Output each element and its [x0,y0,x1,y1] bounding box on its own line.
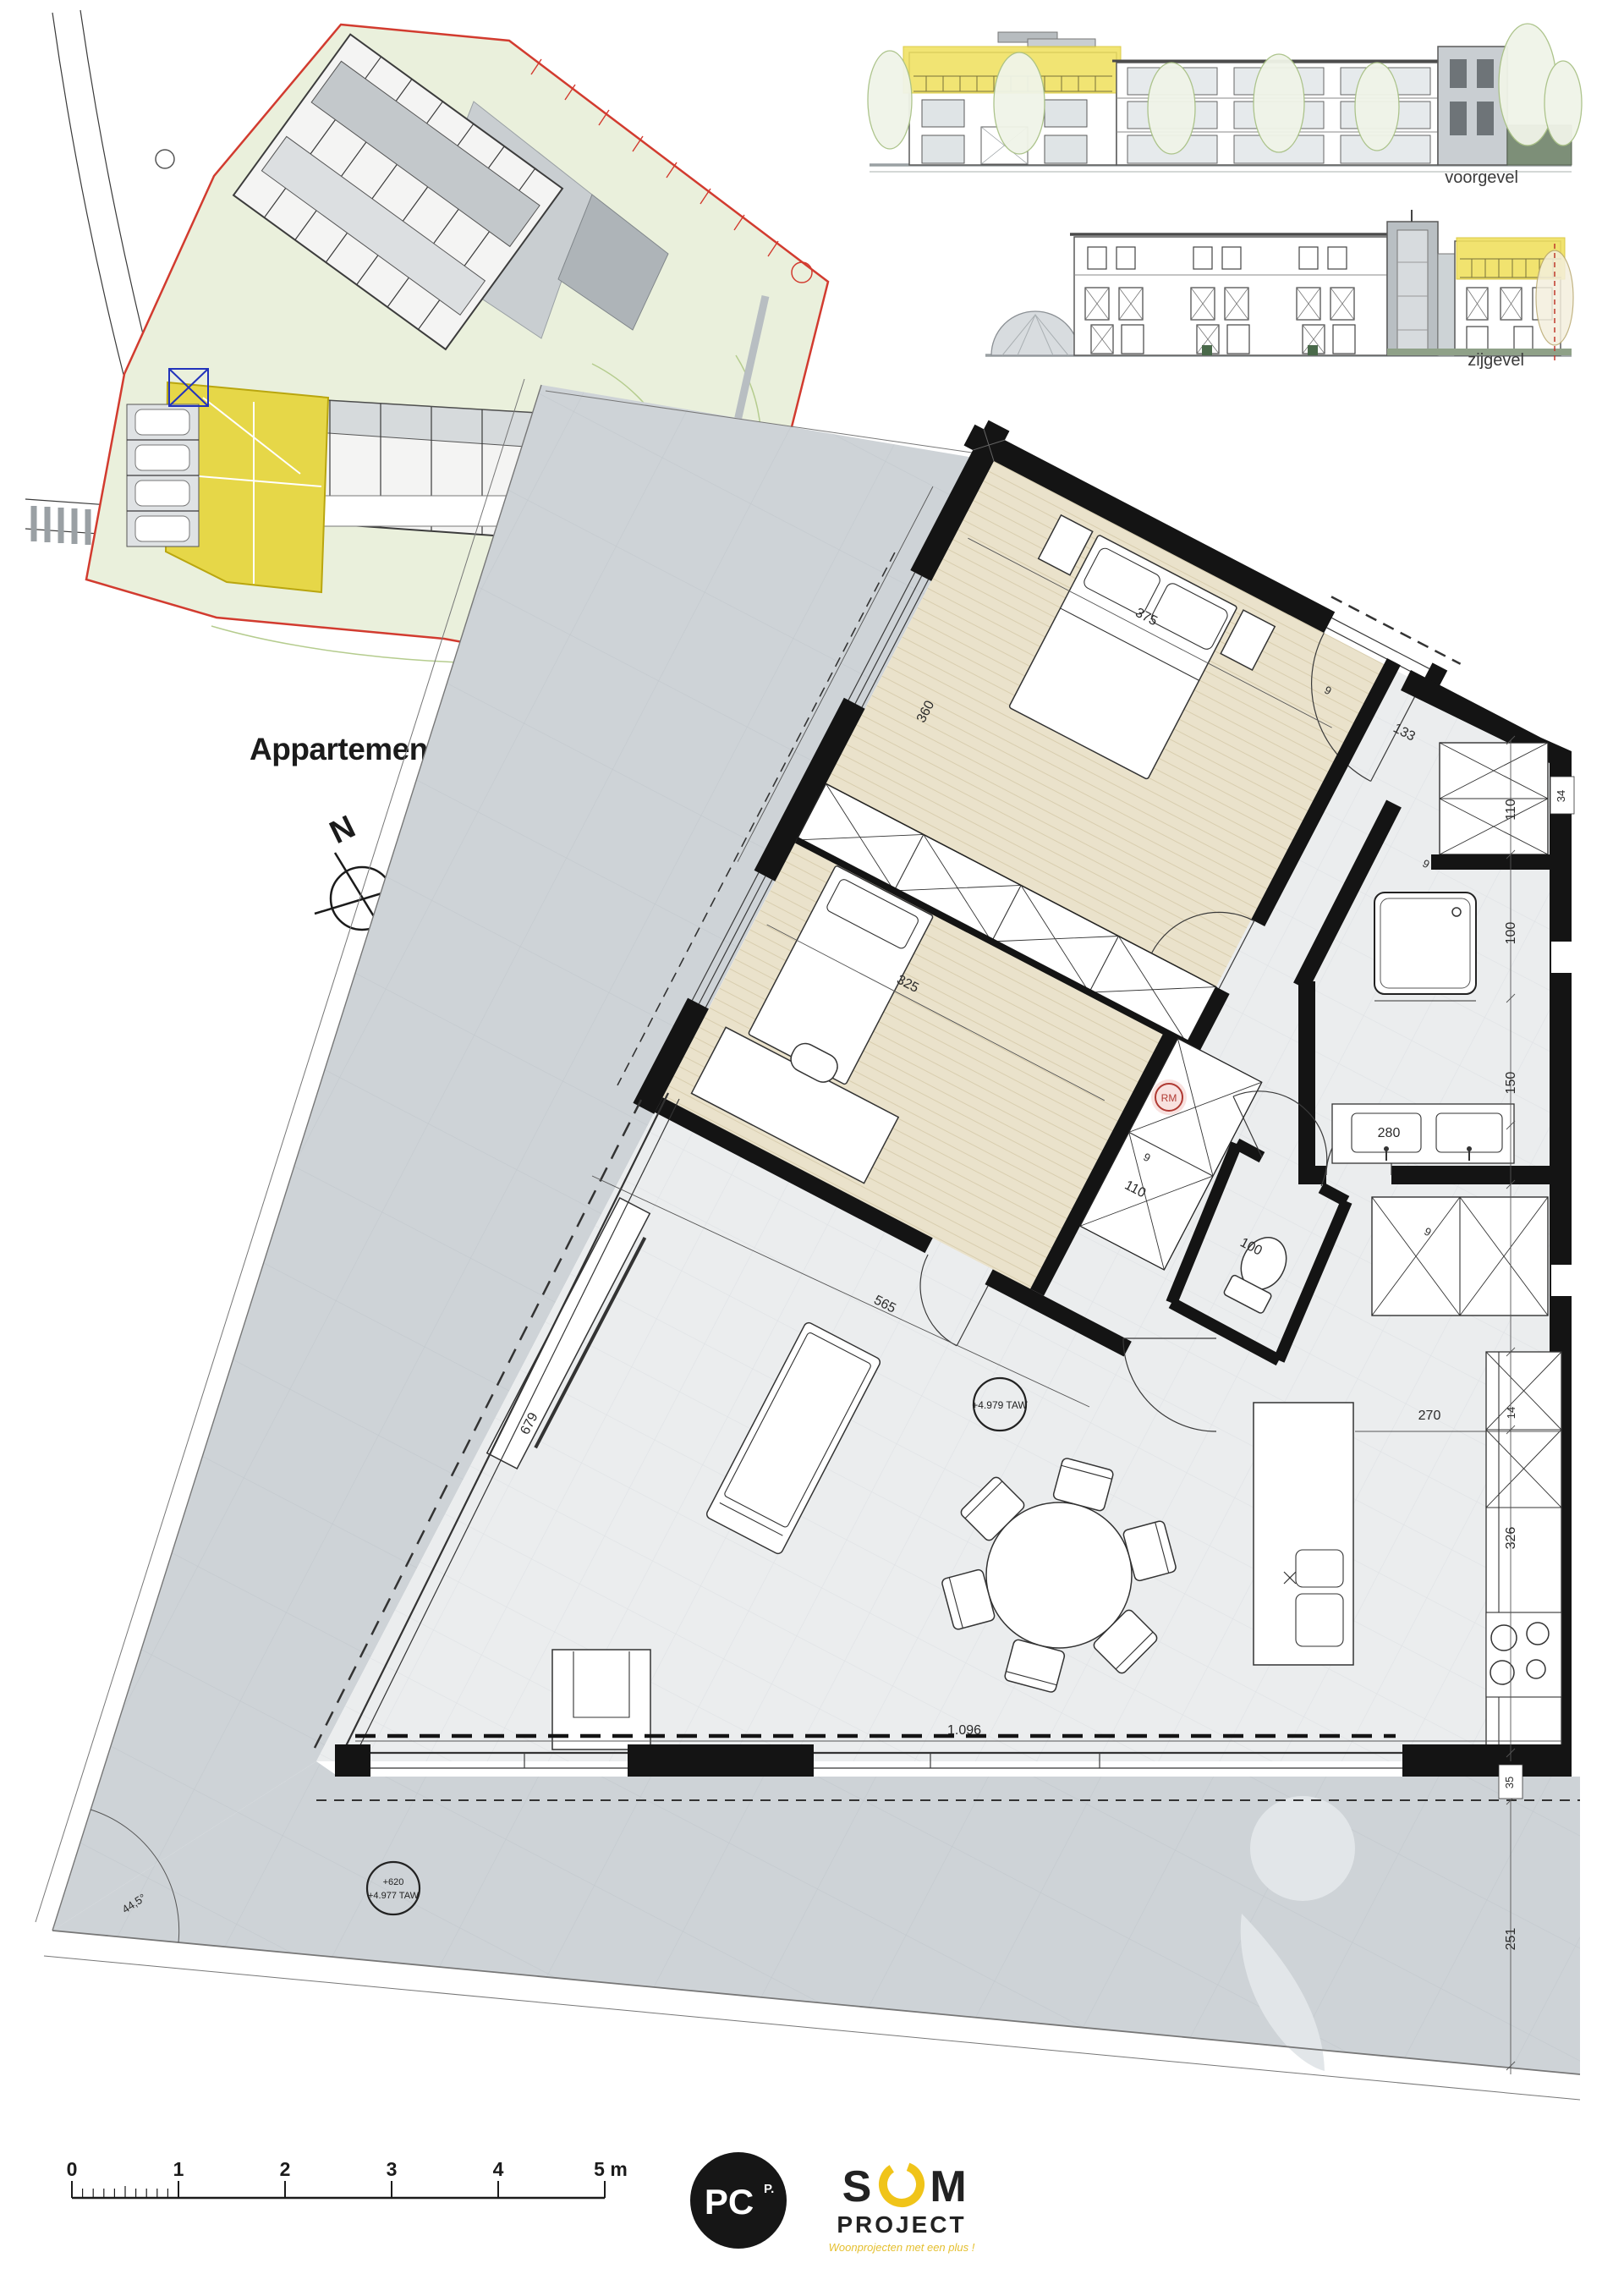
smoke-detector: RM [1151,1079,1187,1115]
drawing-canvas: voorgevel [0,0,1624,2296]
svg-text:RM: RM [1161,1092,1177,1104]
scale-1: 1 [173,2158,184,2180]
som-project: PROJECT [837,2211,966,2238]
dim-14: 14 [1505,1407,1517,1419]
plan-sheet: voorgevel [0,0,1624,2296]
som-project-logo: S M PROJECT Woonprojecten met een plus ! [829,2161,975,2254]
elev-zijgevel: zijgevel [985,210,1573,370]
crosswalk [34,506,101,546]
som-m: M [930,2162,966,2211]
north-label: N [325,809,361,851]
pc-logo-text: PC [705,2182,754,2222]
som-o-icon [878,2161,925,2208]
kitchen-counter [1486,1352,1561,1761]
pc-logo-sup: P. [764,2182,774,2196]
dim-270: 270 [1418,1409,1441,1423]
scale-5: 5 m [594,2158,628,2180]
pc-logo: PC P. [690,2152,787,2249]
storage-closet-top [1431,743,1556,870]
shower [1374,893,1476,1001]
floor-plan: 44,5° [36,379,1580,2100]
cooktop [1486,1612,1561,1697]
scale-4: 4 [493,2158,504,2180]
som-tagline: Woonprojecten met een plus ! [829,2241,975,2254]
vanity [1332,1104,1514,1163]
som-s: S [842,2162,872,2211]
laundry-cabinets [1372,1197,1548,1316]
scale-0: 0 [67,2158,78,2180]
dim-100a: 100 [1504,922,1518,945]
dim-326: 326 [1504,1527,1518,1550]
scale-3: 3 [387,2158,398,2180]
scale-bar: 0 1 2 3 4 5 m [67,2158,628,2198]
dim-35: 35 [1503,1777,1516,1788]
kitchen-island [1254,1403,1353,1665]
label-zijgevel: zijgevel [1468,351,1524,370]
dim-280: 280 [1378,1126,1401,1140]
dim-1096: 1.096 [947,1723,981,1738]
dim-110b: 110 [1504,799,1518,821]
svg-text:+4.977 TAW: +4.977 TAW [368,1891,420,1901]
dim-251: 251 [1504,1928,1518,1951]
svg-text:+4.979 TAW: +4.979 TAW [972,1399,1028,1411]
dim-34: 34 [1555,790,1567,802]
label-voorgevel: voorgevel [1445,168,1518,187]
svg-text:+620: +620 [383,1877,404,1887]
dining-table [986,1502,1132,1648]
scale-2: 2 [280,2158,291,2180]
dim-150: 150 [1504,1072,1518,1095]
elev-voorgevel: voorgevel [868,24,1582,187]
terrace-bottom [52,1761,1580,2074]
